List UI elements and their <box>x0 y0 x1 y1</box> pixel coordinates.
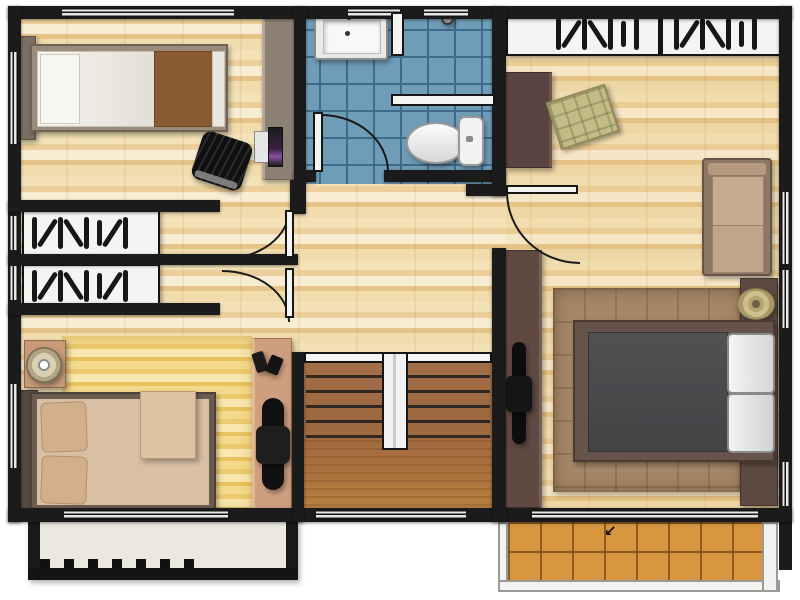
master-door-leaf <box>506 185 578 194</box>
window-icon <box>316 510 466 520</box>
hanger-icon <box>705 19 727 49</box>
hanger-icon <box>726 18 731 50</box>
balcony-right-rail-bottom <box>498 580 780 592</box>
hanger-icon <box>752 18 757 50</box>
bathtub <box>314 12 388 60</box>
window-icon <box>532 510 758 520</box>
bathtub-basin <box>323 20 381 54</box>
window-icon <box>9 384 18 468</box>
hanger-icon <box>679 19 701 49</box>
bed1-footfold <box>212 51 225 127</box>
entry-arrow-icon: ↙ <box>604 524 617 539</box>
bed1-pillow <box>40 54 80 124</box>
hanger-icon <box>84 270 89 302</box>
hanger-icon <box>739 21 744 47</box>
railing-post <box>184 559 194 569</box>
hanger-icon-row-4 <box>674 18 757 50</box>
hanger-icon <box>608 18 613 50</box>
television-stand <box>506 376 532 412</box>
hanger-icon <box>97 220 102 246</box>
closet2-door-leaf <box>285 268 294 318</box>
railing-post <box>40 559 50 569</box>
wall-closet2-bottom <box>8 303 220 315</box>
balcony-right-wall-end <box>779 514 792 570</box>
master-pillow <box>727 393 775 453</box>
window-icon <box>9 52 18 144</box>
window-icon <box>781 462 790 506</box>
balcony-left-railing <box>28 568 298 580</box>
hanger-icon <box>97 273 102 299</box>
window-icon <box>424 8 468 17</box>
hanger-icon <box>37 218 59 248</box>
bathroom-door-leaf <box>313 112 323 172</box>
window-icon <box>64 510 228 520</box>
sofa-cushion <box>712 176 764 226</box>
stair-grain <box>304 440 492 512</box>
window-icon <box>62 8 234 17</box>
sofa-back <box>708 163 766 175</box>
table-lamp <box>26 347 62 383</box>
bed2-frame <box>30 392 216 512</box>
floor-plan: ↙ <box>0 0 800 600</box>
bathtub-faucet <box>345 31 350 36</box>
hanger-icon <box>561 19 583 49</box>
window-icon <box>781 270 790 328</box>
sofa-cushion <box>712 225 764 273</box>
stair-center-railing <box>382 352 408 450</box>
balcony-right-tiles <box>508 522 762 580</box>
office-chair-seat <box>256 426 290 464</box>
master-mattress <box>588 332 728 452</box>
hanger-icon <box>63 218 85 248</box>
wall-stairs-master <box>492 248 506 522</box>
hanger-icon <box>84 217 89 249</box>
wall-closet-mid <box>8 254 298 265</box>
hanger-icon <box>587 19 609 49</box>
hanger-icon <box>582 18 587 50</box>
hanger-icon <box>102 271 124 301</box>
wall-bedroom1-bottom <box>8 200 220 212</box>
bed2-pillow <box>40 401 88 453</box>
wall-bath-bottom-right <box>384 170 506 182</box>
bed1-frame <box>30 44 228 132</box>
hanger-icon-row-3 <box>556 18 639 50</box>
railing-post <box>160 559 170 569</box>
master-pillow <box>727 333 775 394</box>
hanger-icon <box>634 18 639 50</box>
hanger-icon <box>58 217 63 249</box>
sofa <box>702 158 772 276</box>
hanger-icon <box>63 271 85 301</box>
bed2-pillow <box>40 455 88 505</box>
laptop-screen <box>268 127 283 167</box>
railing-post <box>136 559 146 569</box>
shower-partition-wall <box>391 12 404 56</box>
wall-master-door-header <box>466 184 506 196</box>
railing-post <box>112 559 122 569</box>
wall-right <box>779 6 792 522</box>
bed2-folded-blanket <box>140 391 196 459</box>
hanger-icon <box>37 271 59 301</box>
hanger-icon-row-1 <box>32 217 128 249</box>
hanger-icon-row-2 <box>32 270 128 302</box>
wall-corridor-stub <box>290 180 306 214</box>
shower-screen <box>391 94 495 106</box>
hanger-icon <box>58 270 63 302</box>
hanger-icon <box>621 21 626 47</box>
window-icon <box>9 266 18 300</box>
closet1-door-leaf <box>285 210 294 258</box>
laptop <box>254 127 284 165</box>
hanger-icon <box>102 218 124 248</box>
railing-post <box>64 559 74 569</box>
window-icon <box>781 192 790 264</box>
dresser <box>504 72 552 168</box>
hanger-icon <box>123 270 128 302</box>
toilet-bowl <box>406 122 466 164</box>
wall-bed1-bath <box>294 6 306 182</box>
window-icon <box>9 216 18 250</box>
hanger-icon <box>700 18 705 50</box>
balcony-right-rail-right <box>762 522 778 592</box>
bed1-blanket <box>154 51 214 127</box>
master-bed-frame <box>573 320 775 462</box>
round-lamp <box>737 288 775 320</box>
railing-post <box>88 559 98 569</box>
hanger-icon <box>123 217 128 249</box>
toilet-button <box>466 136 473 142</box>
wall-bedroom2-stairs <box>292 352 304 522</box>
